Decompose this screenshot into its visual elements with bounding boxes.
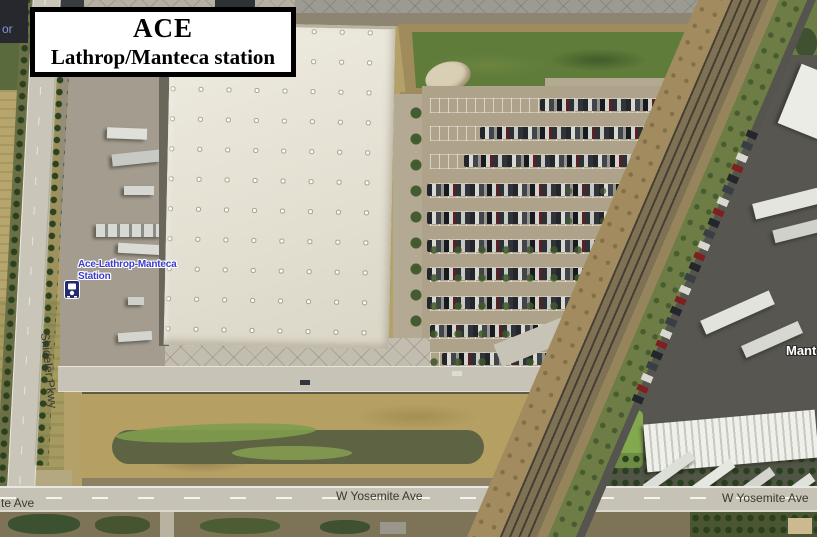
pond-reeds-2 [232, 446, 352, 460]
dock-trailer-1 [107, 127, 147, 139]
yard-trailer-3 [700, 290, 775, 334]
city-label-fragment: Mant [786, 343, 816, 358]
yosemite-label-left: te Ave [1, 496, 34, 510]
train-icon[interactable] [64, 280, 80, 299]
yosemite-label-right: W Yosemite Ave [722, 491, 809, 505]
house-roof-gray [380, 522, 406, 534]
station-label-line-2: Station [78, 271, 176, 283]
car-on-road-1 [452, 371, 462, 376]
aerial-map: or ACE Lathrop/Manteca station Ace-Lathr… [0, 0, 817, 537]
yard-trailer-1 [752, 187, 817, 220]
corner-badge-text: or [2, 22, 13, 36]
title-annotation-box: ACE Lathrop/Manteca station [30, 7, 296, 77]
retention-basin [82, 392, 560, 486]
yard-trailer-2 [772, 216, 817, 243]
driveway [160, 512, 174, 537]
tree-blob [200, 518, 280, 534]
station-marker[interactable]: Ace-Lathrop-Manteca Station [64, 259, 194, 301]
tree-blob [95, 516, 150, 534]
title-line-1: ACE [35, 12, 291, 44]
adjacent-warehouse-roof [295, 0, 747, 14]
truck-roof-top-2 [215, 0, 255, 7]
station-label: Ace-Lathrop-Manteca Station [78, 259, 176, 283]
south-frontage-strip [0, 512, 817, 537]
yosemite-label-center: W Yosemite Ave [336, 489, 423, 503]
dock-trailer-row [96, 224, 162, 237]
tree-blob [320, 520, 370, 534]
house-roof-3 [788, 518, 812, 534]
south-access-road [58, 366, 558, 392]
car-on-road-2 [300, 380, 310, 385]
building-east-tree-strip [393, 94, 423, 350]
yard-building-topright [778, 64, 817, 141]
dock-trailer-3 [124, 186, 154, 195]
title-line-2: Lathrop/Manteca station [35, 44, 291, 70]
station-label-line-1: Ace-Lathrop-Manteca [78, 259, 176, 271]
tree-blob [8, 514, 80, 534]
corner-badge: or [0, 0, 28, 43]
